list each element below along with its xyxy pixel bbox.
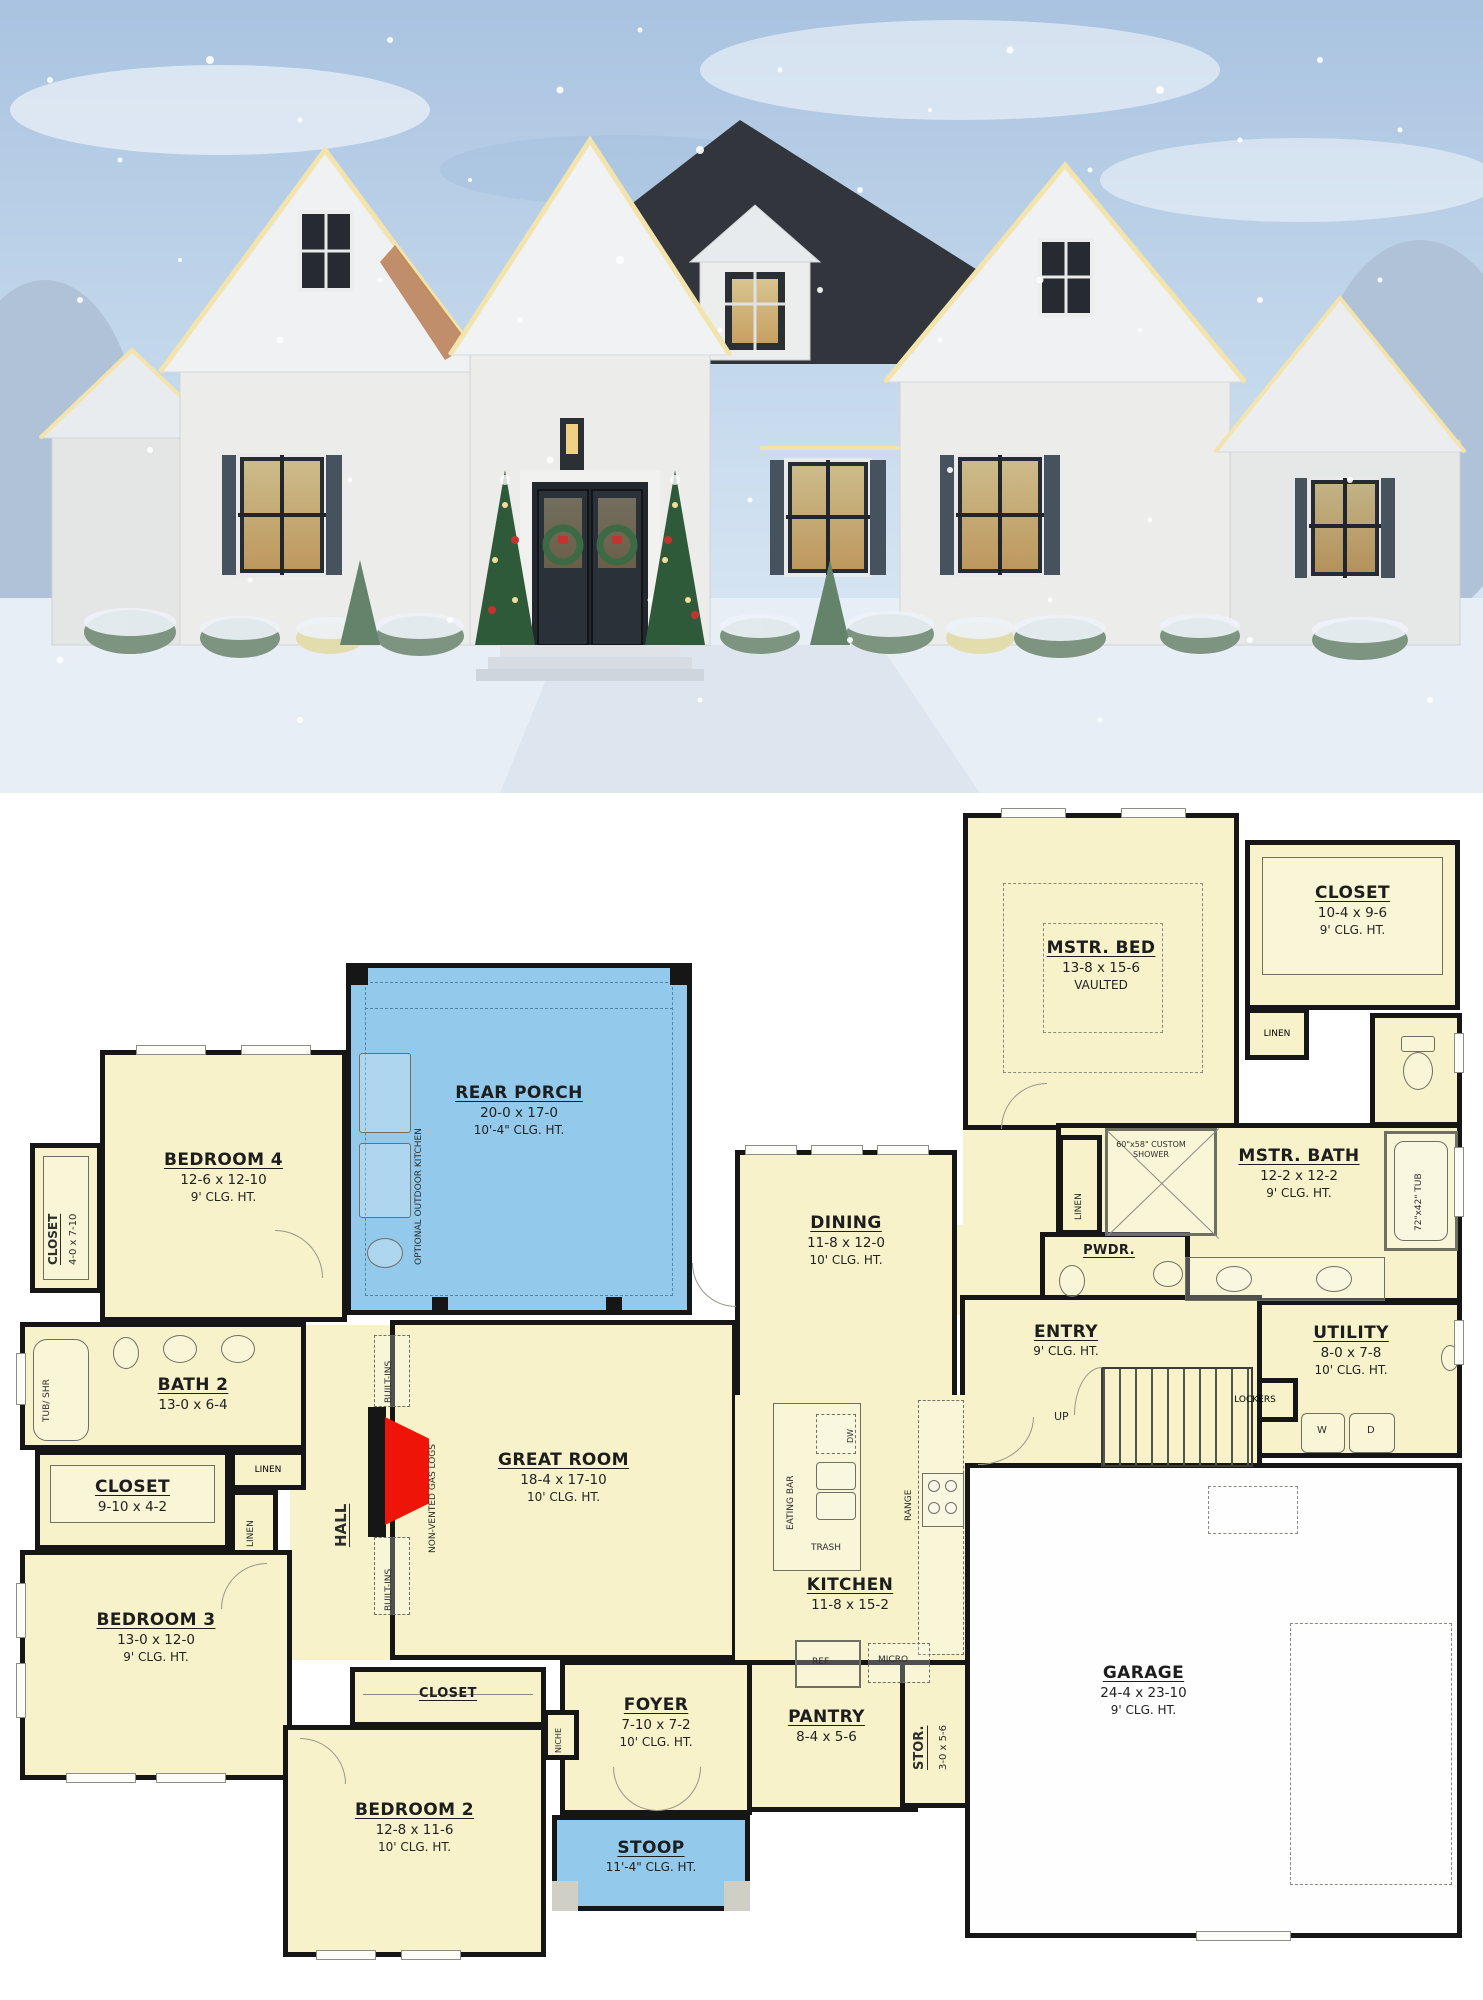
toilet <box>1403 1052 1433 1090</box>
room-pwdr: PWDR. <box>1040 1232 1190 1302</box>
linen-label: LINEN <box>1264 1029 1291 1039</box>
room-mstr-bed: MSTR. BED 13-8 x 15-6 VAULTED <box>963 813 1239 1130</box>
room-bedroom2-closet: CLOSET <box>350 1667 546 1727</box>
bedroom2-door <box>300 1738 346 1784</box>
room-great-room: GREAT ROOM 18-4 x 17-10 10' CLG. HT. <box>390 1320 737 1660</box>
window <box>1454 1033 1464 1073</box>
ref-label: REF. <box>812 1657 831 1667</box>
room-rear-porch: REAR PORCH 20-0 x 17-0 10'-4" CLG. HT. <box>346 963 692 1315</box>
stairs <box>1101 1367 1253 1467</box>
master-vanity <box>1185 1257 1385 1301</box>
window <box>1454 1320 1464 1365</box>
porch-door <box>692 1263 736 1307</box>
window <box>1001 808 1066 818</box>
window <box>1196 1931 1291 1941</box>
porch-beam-line <box>365 1008 673 1009</box>
range <box>922 1473 964 1527</box>
sink <box>1316 1266 1352 1292</box>
stor-label: STOR. <box>912 1690 927 1770</box>
up-label: UP <box>1054 1410 1069 1423</box>
micro-label: MICRO <box>878 1655 908 1665</box>
porch-ceiling-line <box>365 982 673 1296</box>
toilet <box>113 1337 139 1369</box>
closet4-label: CLOSET <box>46 1173 60 1265</box>
window <box>401 1950 461 1960</box>
window <box>1121 808 1186 818</box>
range-label: RANGE <box>904 1475 914 1521</box>
attic-access-line <box>1208 1486 1298 1534</box>
island-sink <box>816 1492 856 1520</box>
gas-logs-label: NON-VENTED GAS LOGS <box>428 1403 438 1553</box>
tub-shr-label: TUB/ SHR <box>42 1350 52 1422</box>
window <box>66 1773 136 1783</box>
room-mstr-linen: LINEN <box>1245 1008 1309 1060</box>
outdoor-sink <box>367 1238 403 1268</box>
room-bedroom3: BEDROOM 3 13-0 x 12-0 9' CLG. HT. <box>20 1550 292 1780</box>
garage-storage-line <box>1290 1623 1452 1885</box>
front-door-leaf <box>657 1767 701 1811</box>
window <box>1454 1147 1464 1217</box>
window <box>811 1145 863 1155</box>
room-bedroom4-closet <box>30 1143 102 1293</box>
window <box>16 1663 26 1718</box>
toilet <box>1059 1265 1085 1297</box>
window <box>16 1583 26 1638</box>
room-mstr-closet: CLOSET 10-4 x 9-6 9' CLG. HT. <box>1245 840 1460 1010</box>
optional-outdoor-kitchen-label: OPTIONAL OUTDOOR KITCHEN <box>414 1095 424 1265</box>
room-bedroom4: BEDROOM 4 12-6 x 12-10 9' CLG. HT. <box>100 1050 347 1322</box>
room-linen-h: LINEN <box>230 1450 306 1490</box>
page: { "photo": {"scene": "white-brick house … <box>0 0 1483 2000</box>
window <box>316 1950 376 1960</box>
custom-shower-label: 60"x58" CUSTOM SHOWER <box>1116 1140 1186 1160</box>
front-door-leaf <box>613 1767 657 1811</box>
linen-vertical-label: LINEN <box>1074 1150 1084 1220</box>
window <box>136 1045 206 1055</box>
trash-label: TRASH <box>811 1543 841 1553</box>
room-hall-closet: CLOSET 9-10 x 4-2 <box>35 1450 230 1550</box>
kitchen-counter <box>918 1400 964 1655</box>
room-stoop: STOOP 11'-4" CLG. HT. <box>552 1815 750 1911</box>
island-sink <box>816 1462 856 1490</box>
sink <box>1216 1266 1252 1292</box>
room-foyer: FOYER 7-10 x 7-2 10' CLG. HT. <box>560 1660 752 1815</box>
room-mstr-wc <box>1370 1013 1462 1127</box>
stor-dims: 3-0 x 5-6 <box>938 1690 949 1770</box>
tub-label: 72"x42" TUB <box>1414 1153 1424 1231</box>
fireplace-wall <box>368 1407 386 1537</box>
window <box>877 1145 929 1155</box>
vault-line-inner <box>1043 923 1163 1033</box>
room-dining: DINING 11-8 x 12-0 10' CLG. HT. <box>735 1150 957 1398</box>
bedroom3-door <box>221 1563 267 1609</box>
closet-shelving <box>1262 857 1443 975</box>
floor-plan: REAR PORCH 20-0 x 17-0 10'-4" CLG. HT. O… <box>16 795 1468 1995</box>
sink <box>1153 1261 1183 1287</box>
bedroom4-door <box>275 1230 323 1278</box>
room-bath2: BATH 2 13-0 x 6-4 <box>20 1322 306 1450</box>
sink <box>163 1335 197 1363</box>
exterior-photo <box>0 0 1483 793</box>
eating-bar-label: EATING BAR <box>786 1450 796 1530</box>
room-garage: GARAGE 24-4 x 23-10 9' CLG. HT. <box>965 1463 1462 1938</box>
window <box>156 1773 226 1783</box>
center-right-window <box>760 448 900 575</box>
sink <box>221 1335 255 1363</box>
window <box>241 1045 311 1055</box>
toilet-tank <box>1401 1036 1435 1052</box>
dw-label: DW <box>846 1413 855 1443</box>
left-windows <box>222 455 342 575</box>
window <box>745 1145 797 1155</box>
niche-label: NICHE <box>554 1717 563 1753</box>
outdoor-kitchen-counter <box>359 1053 411 1133</box>
closet4-dims: 4-0 x 7-10 <box>68 1173 79 1265</box>
window <box>16 1353 26 1405</box>
room-bedroom2: BEDROOM 2 12-8 x 11-6 10' CLG. HT. <box>283 1725 546 1957</box>
hall-label: HALL <box>332 1485 350 1547</box>
right-windows <box>940 455 1060 575</box>
outdoor-grill <box>359 1143 411 1218</box>
